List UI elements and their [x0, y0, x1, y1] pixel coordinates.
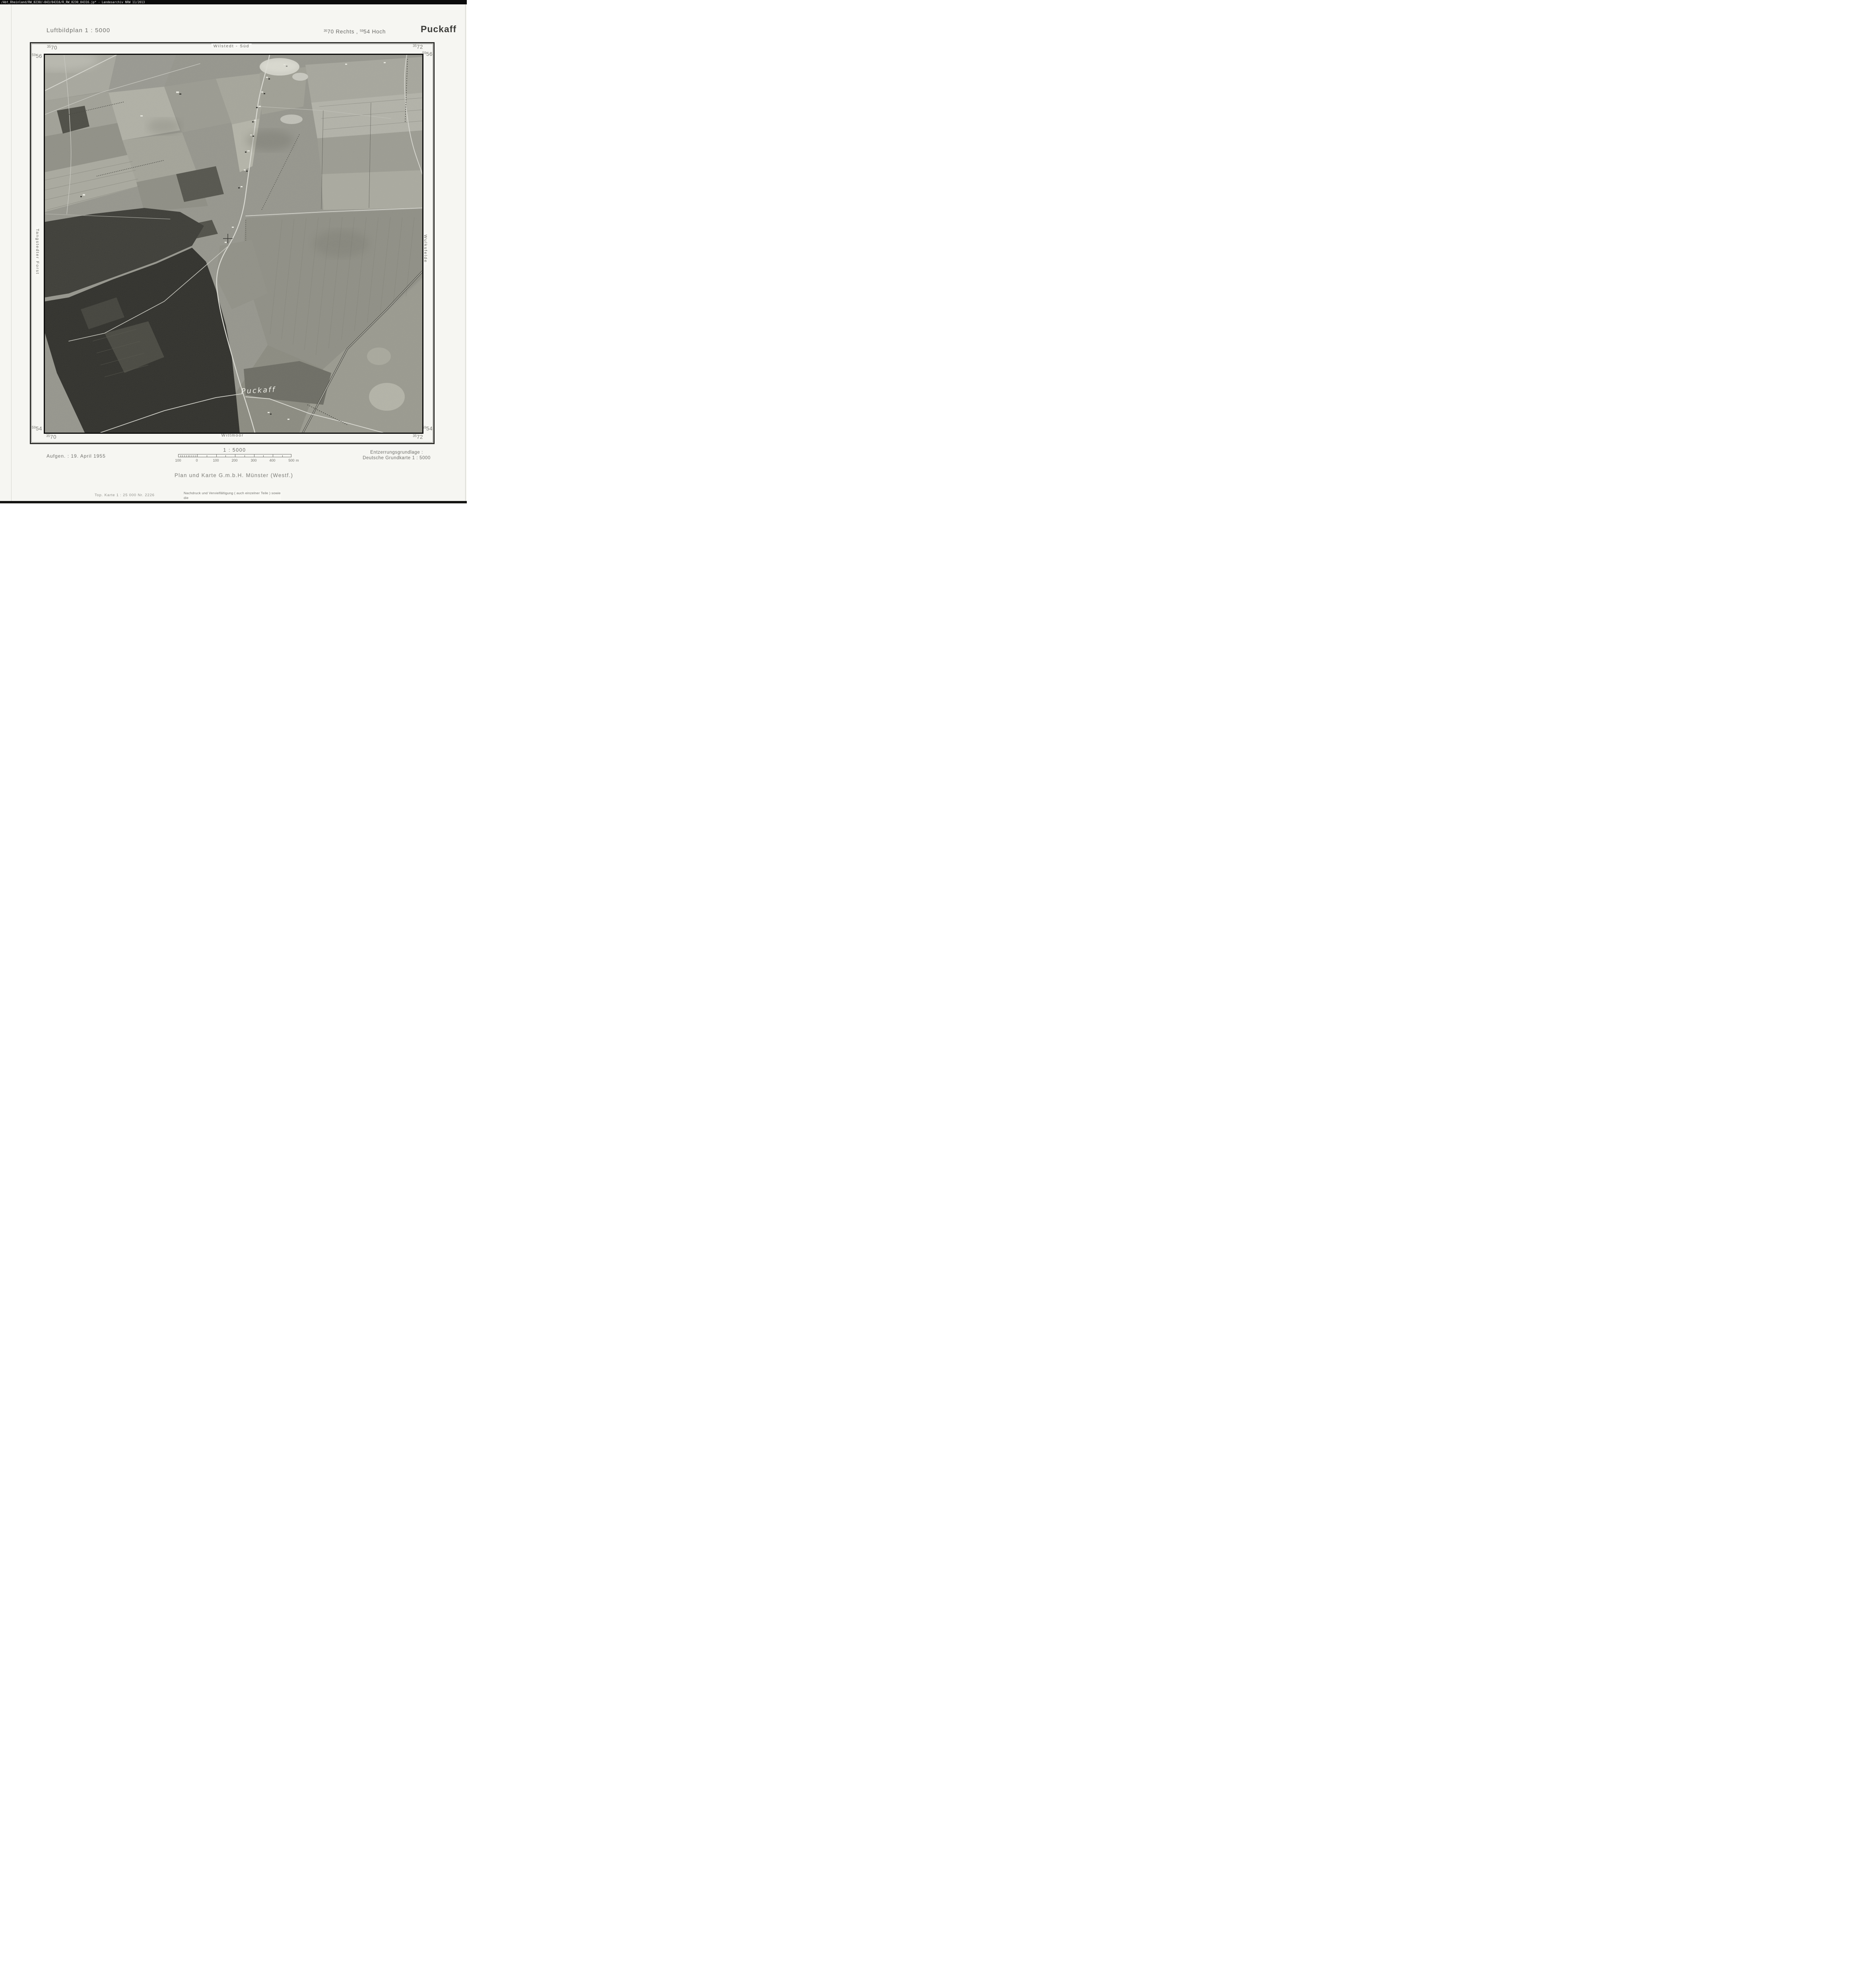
scale-bar — [178, 454, 291, 457]
archive-header-bar: /Abt_Rheinland/RW_0230/~043/04316/R_RW_0… — [0, 0, 467, 4]
corner-coord-bottom-left-y: 5954 — [32, 425, 42, 432]
scan-edge-left — [11, 4, 12, 501]
scale-bar-unit: m — [296, 458, 299, 462]
corner-coord-top-right-y: 5956 — [422, 51, 433, 57]
grid-reference: 3570 Rechts , 5954 Hoch — [324, 29, 386, 35]
scale-bar-labels: 100 0 100 200 300 400 500 m — [178, 458, 291, 463]
scan-bottom-edge — [0, 501, 467, 503]
grain-overlay — [45, 55, 422, 433]
neighbor-label-top: Wilstedt - Süd — [212, 44, 252, 49]
grid-hoch: 54 Hoch — [363, 29, 386, 35]
grid-hoch-sup: 59 — [360, 29, 363, 33]
scale-text: 1 : 5000 — [223, 447, 246, 453]
rectification-note: Entzerrungsgrundlage : Deutsche Grundkar… — [352, 450, 441, 461]
acquisition-date: Aufgen. : 19. April 1955 — [47, 453, 106, 459]
grid-rechts-sup: 35 — [324, 29, 327, 33]
corner-coord-bottom-right-y: 5954 — [422, 425, 433, 432]
corner-coord-top-left-y: 5956 — [32, 53, 42, 59]
copyright-line1: Nachdruck und Vervielfältigung ( auch ei… — [184, 491, 281, 500]
rectification-line2: Deutsche Grundkarte 1 : 5000 — [352, 455, 441, 461]
neighbor-label-left: Tangstedter Forst — [35, 227, 40, 277]
corner-coord-bottom-right-x: 3572 — [413, 434, 423, 440]
topo-map-reference: Top. Karte 1 : 25 000 Nr. 2226 — [95, 493, 155, 497]
series-title: Luftbildplan 1 : 5000 — [47, 27, 110, 34]
neighbor-label-right: Wulksfelde — [423, 233, 428, 265]
sheet-title: Puckaff — [421, 24, 456, 35]
aerial-photo-svg: Puckaff — [45, 55, 422, 433]
corner-coord-top-right-x: 3572 — [413, 44, 423, 50]
map-sheet: /Abt_Rheinland/RW_0230/~043/04316/R_RW_0… — [0, 0, 467, 503]
aerial-photo: Puckaff — [44, 54, 423, 434]
grid-rechts: 70 Rechts , — [327, 29, 358, 35]
corner-coord-top-left-x: 3570 — [47, 45, 57, 51]
corner-coord-bottom-left-x: 3570 — [46, 434, 56, 440]
rectification-line1: Entzerrungsgrundlage : — [352, 450, 441, 455]
publisher-imprint: Plan und Karte G.m.b.H. Münster (Westf.) — [175, 472, 293, 478]
scan-edge-right — [465, 4, 466, 501]
